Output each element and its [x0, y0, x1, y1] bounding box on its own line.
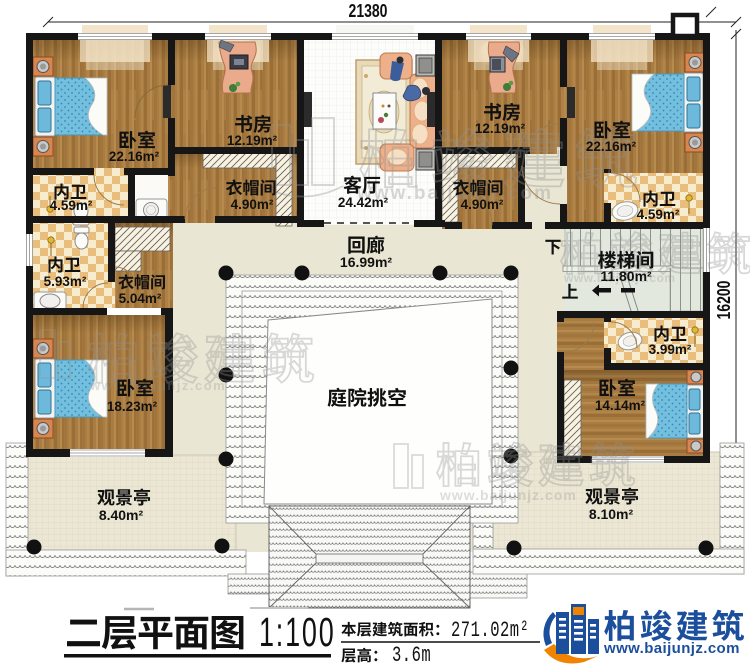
svg-text:8.10m²: 8.10m² [589, 506, 634, 522]
svg-text:3.6m: 3.6m [392, 642, 431, 668]
svg-text:3.99m²: 3.99m² [649, 342, 692, 357]
svg-text:18.23m²: 18.23m² [107, 399, 158, 414]
svg-text:5.04m²: 5.04m² [119, 291, 162, 306]
svg-text:16200: 16200 [714, 281, 734, 320]
svg-text:22.16m²: 22.16m² [586, 139, 637, 154]
svg-text:271.02m²: 271.02m² [451, 617, 529, 643]
svg-text:4.90m²: 4.90m² [461, 197, 504, 212]
svg-text:21380: 21380 [349, 1, 388, 21]
svg-text:11.80m²: 11.80m² [600, 268, 652, 284]
svg-text:22.16m²: 22.16m² [109, 149, 160, 164]
svg-text:12.19m²: 12.19m² [227, 133, 278, 148]
svg-text:24.42m²: 24.42m² [338, 195, 389, 210]
svg-text:4.59m²: 4.59m² [637, 207, 680, 222]
svg-text:5.93m²: 5.93m² [44, 274, 87, 289]
svg-text:www.baijunjz.com: www.baijunjz.com [439, 487, 577, 503]
svg-text:1:100: 1:100 [259, 611, 336, 656]
svg-text:4.90m²: 4.90m² [231, 197, 274, 212]
svg-text:16.99m²: 16.99m² [340, 254, 392, 270]
svg-text:8.40m²: 8.40m² [99, 507, 144, 523]
svg-text:12.19m²: 12.19m² [475, 121, 526, 136]
svg-text:www.baijunjz.com: www.baijunjz.com [603, 640, 740, 657]
svg-text:www.baijunjz.com: www.baijunjz.com [89, 378, 226, 393]
svg-text:4.59m²: 4.59m² [50, 198, 93, 213]
svg-text:14.14m²: 14.14m² [595, 398, 646, 413]
